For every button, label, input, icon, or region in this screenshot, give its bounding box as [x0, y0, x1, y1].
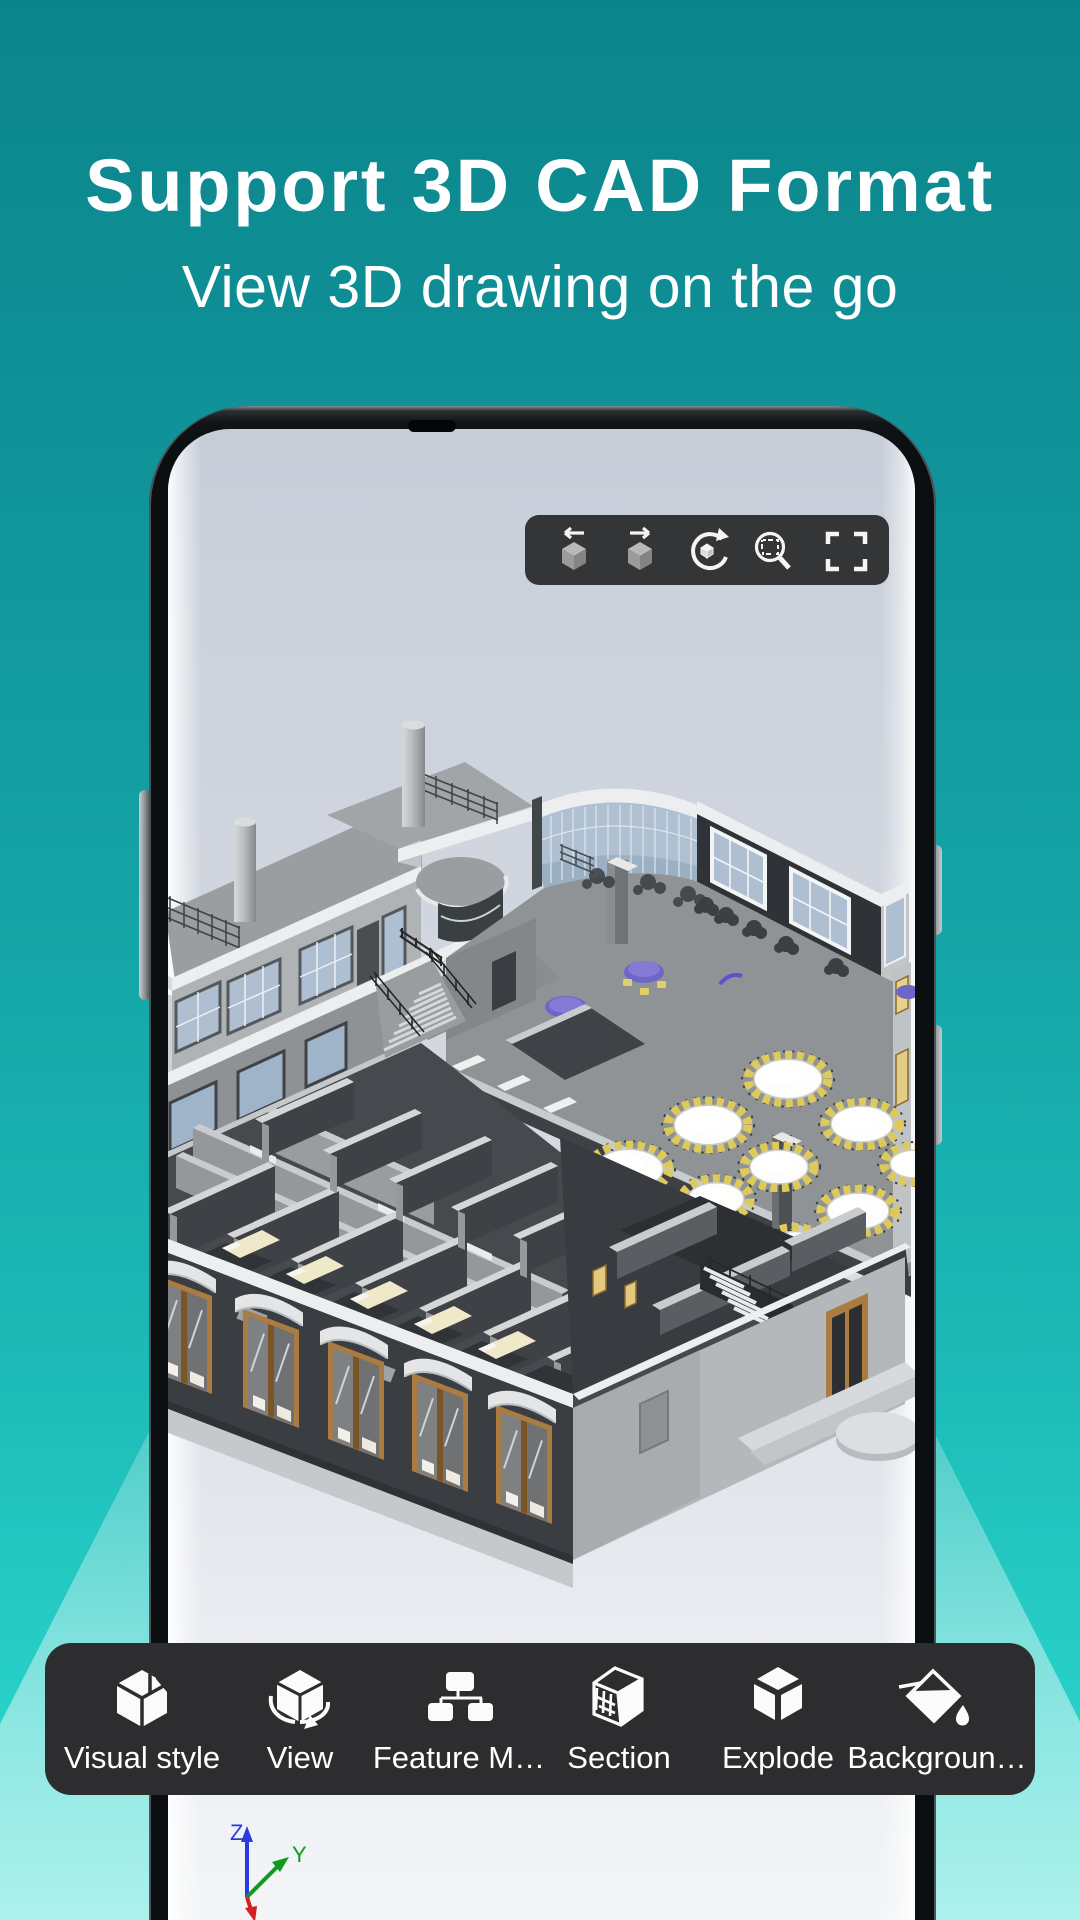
svg-text:Explode: Explode — [722, 1740, 834, 1775]
svg-text:Feature M…: Feature M… — [373, 1740, 545, 1775]
svg-text:Visual style: Visual style — [64, 1740, 220, 1775]
svg-text:View: View — [267, 1740, 334, 1775]
svg-text:Backgroun…: Backgroun… — [847, 1740, 1026, 1775]
svg-text:Section: Section — [567, 1740, 670, 1775]
